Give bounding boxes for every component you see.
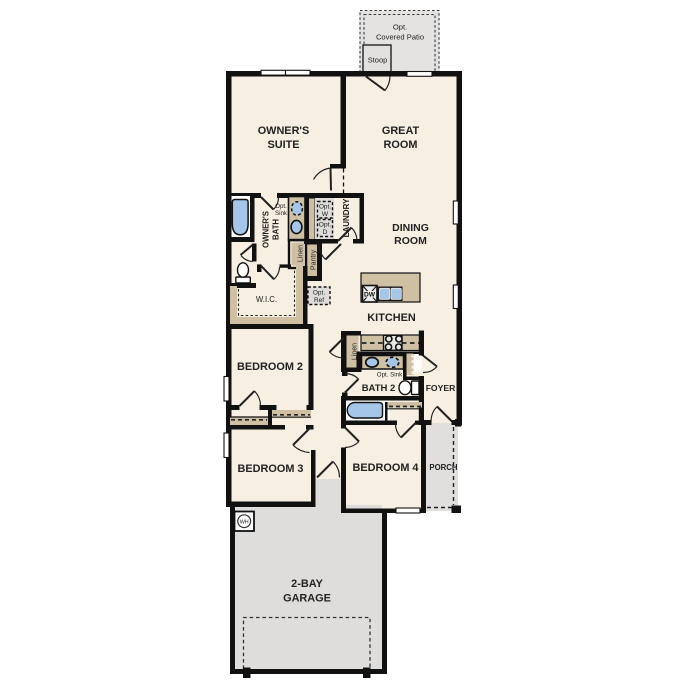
- svg-text:SUITE: SUITE: [267, 139, 299, 151]
- svg-text:BATH: BATH: [272, 219, 281, 240]
- svg-text:Opt. Sink: Opt. Sink: [377, 372, 403, 379]
- svg-text:Ref: Ref: [314, 297, 324, 304]
- svg-text:2-BAY: 2-BAY: [291, 578, 323, 590]
- svg-text:OWNER'S: OWNER'S: [258, 125, 310, 137]
- svg-text:D: D: [323, 229, 328, 236]
- svg-text:GREAT: GREAT: [382, 125, 420, 137]
- svg-text:Opt.: Opt.: [313, 290, 325, 297]
- svg-text:DW: DW: [364, 292, 376, 299]
- svg-text:Linen: Linen: [298, 245, 305, 262]
- svg-text:Sink: Sink: [275, 210, 288, 217]
- svg-text:Opt.: Opt.: [319, 204, 331, 211]
- svg-text:OWNER'S: OWNER'S: [262, 211, 271, 248]
- svg-text:Covered Patio: Covered Patio: [376, 33, 424, 42]
- svg-text:DINING: DINING: [392, 222, 429, 234]
- svg-text:ROOM: ROOM: [384, 139, 418, 151]
- svg-text:Pantry: Pantry: [311, 249, 318, 270]
- svg-text:PORCH: PORCH: [429, 463, 458, 472]
- svg-text:Opt.: Opt.: [319, 222, 332, 229]
- svg-text:KITCHEN: KITCHEN: [367, 312, 416, 324]
- svg-text:ROOM: ROOM: [394, 235, 427, 247]
- svg-text:Opt.: Opt.: [393, 23, 407, 32]
- svg-text:W.I.C.: W.I.C.: [256, 295, 277, 304]
- svg-text:W: W: [322, 211, 329, 218]
- svg-text:LAUNDRY: LAUNDRY: [342, 198, 351, 237]
- svg-text:BATH 2: BATH 2: [362, 383, 396, 394]
- svg-text:BEDROOM 2: BEDROOM 2: [237, 361, 303, 373]
- svg-text:Stoop: Stoop: [368, 56, 388, 65]
- svg-text:FOYER: FOYER: [426, 383, 456, 393]
- svg-text:Opt.: Opt.: [275, 203, 287, 210]
- svg-text:WH: WH: [240, 520, 249, 526]
- svg-text:Linen: Linen: [352, 343, 359, 360]
- svg-text:BEDROOM 3: BEDROOM 3: [238, 463, 304, 475]
- svg-text:GARAGE: GARAGE: [283, 593, 331, 605]
- svg-text:BEDROOM 4: BEDROOM 4: [353, 462, 419, 474]
